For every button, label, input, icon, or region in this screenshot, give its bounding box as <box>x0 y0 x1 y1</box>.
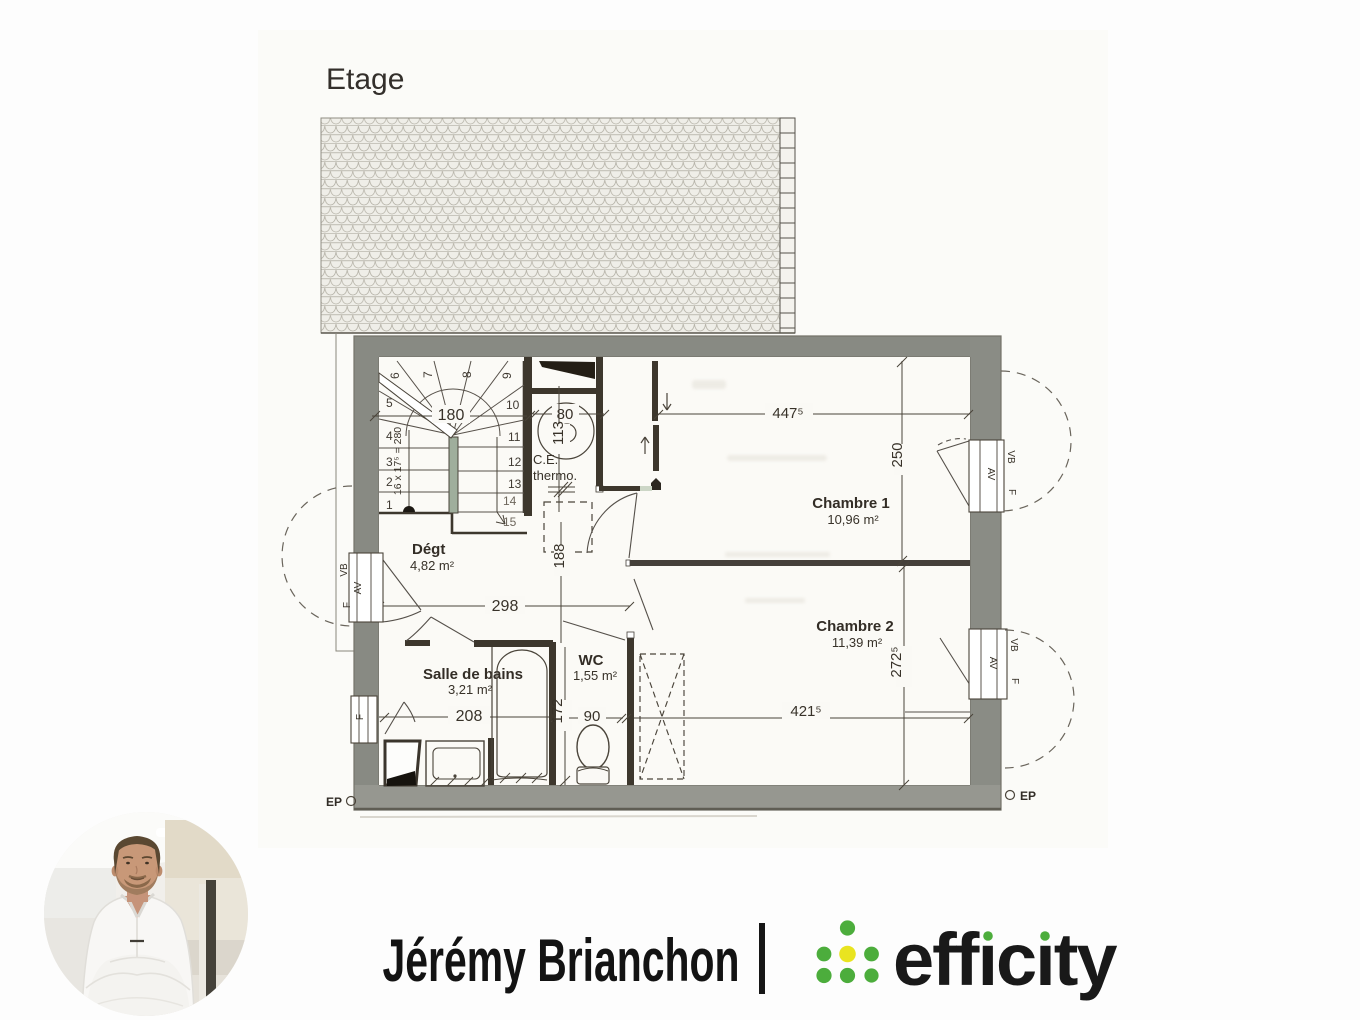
svg-text:113: 113 <box>550 421 567 445</box>
svg-text:1,55 m²: 1,55 m² <box>573 668 618 683</box>
svg-text:EP: EP <box>1020 789 1036 803</box>
svg-text:F: F <box>342 602 353 608</box>
svg-text:WC: WC <box>579 652 604 669</box>
svg-text:EP: EP <box>326 795 342 809</box>
svg-text:180: 180 <box>438 407 465 424</box>
svg-text:10: 10 <box>506 398 520 412</box>
svg-text:447⁵: 447⁵ <box>772 405 803 422</box>
svg-text:C.E.: C.E. <box>533 452 558 467</box>
svg-text:Dégt: Dégt <box>412 541 445 558</box>
svg-text:Chambre 2: Chambre 2 <box>816 618 894 635</box>
svg-text:VB: VB <box>1005 450 1016 464</box>
svg-text:VB: VB <box>339 563 350 577</box>
svg-text:172: 172 <box>549 698 566 723</box>
svg-text:F: F <box>1009 678 1020 684</box>
svg-text:298: 298 <box>492 598 519 615</box>
svg-text:421⁵: 421⁵ <box>790 703 821 720</box>
svg-text:effıcıty: effıcıty <box>893 918 1117 1001</box>
svg-text:16 x 17⁵ = 280: 16 x 17⁵ = 280 <box>392 427 404 495</box>
svg-text:6: 6 <box>388 372 402 379</box>
svg-text:13: 13 <box>508 477 522 491</box>
svg-text:188: 188 <box>551 543 568 568</box>
svg-text:1: 1 <box>386 498 393 512</box>
svg-text:9: 9 <box>500 372 514 379</box>
svg-text:AV: AV <box>987 657 998 670</box>
svg-text:12: 12 <box>508 455 522 469</box>
svg-text:Chambre 1: Chambre 1 <box>812 495 890 512</box>
svg-text:AV: AV <box>985 468 996 481</box>
svg-text:Salle de bains: Salle de bains <box>423 666 523 683</box>
svg-text:14: 14 <box>503 494 517 508</box>
svg-text:15: 15 <box>503 515 517 529</box>
svg-text:5: 5 <box>386 396 393 410</box>
svg-text:VB: VB <box>1008 638 1019 652</box>
svg-text:Jérémy Brianchon: Jérémy Brianchon <box>383 927 740 994</box>
svg-text:208: 208 <box>456 708 483 725</box>
svg-text:8: 8 <box>460 371 474 378</box>
svg-text:272⁵: 272⁵ <box>888 646 905 677</box>
svg-text:F: F <box>355 714 366 720</box>
svg-text:11: 11 <box>508 430 521 444</box>
svg-text:11,39 m²: 11,39 m² <box>832 635 883 650</box>
svg-text:F: F <box>1006 489 1017 495</box>
svg-text:3,21 m²: 3,21 m² <box>448 682 493 697</box>
svg-text:7: 7 <box>421 371 435 378</box>
svg-text:90: 90 <box>584 708 601 725</box>
svg-text:AV: AV <box>353 581 364 594</box>
svg-text:250: 250 <box>889 442 906 467</box>
svg-text:4,82 m²: 4,82 m² <box>410 558 455 573</box>
svg-text:10,96 m²: 10,96 m² <box>827 512 879 527</box>
svg-text:Etage: Etage <box>326 63 404 96</box>
svg-text:thermo.: thermo. <box>533 468 577 483</box>
